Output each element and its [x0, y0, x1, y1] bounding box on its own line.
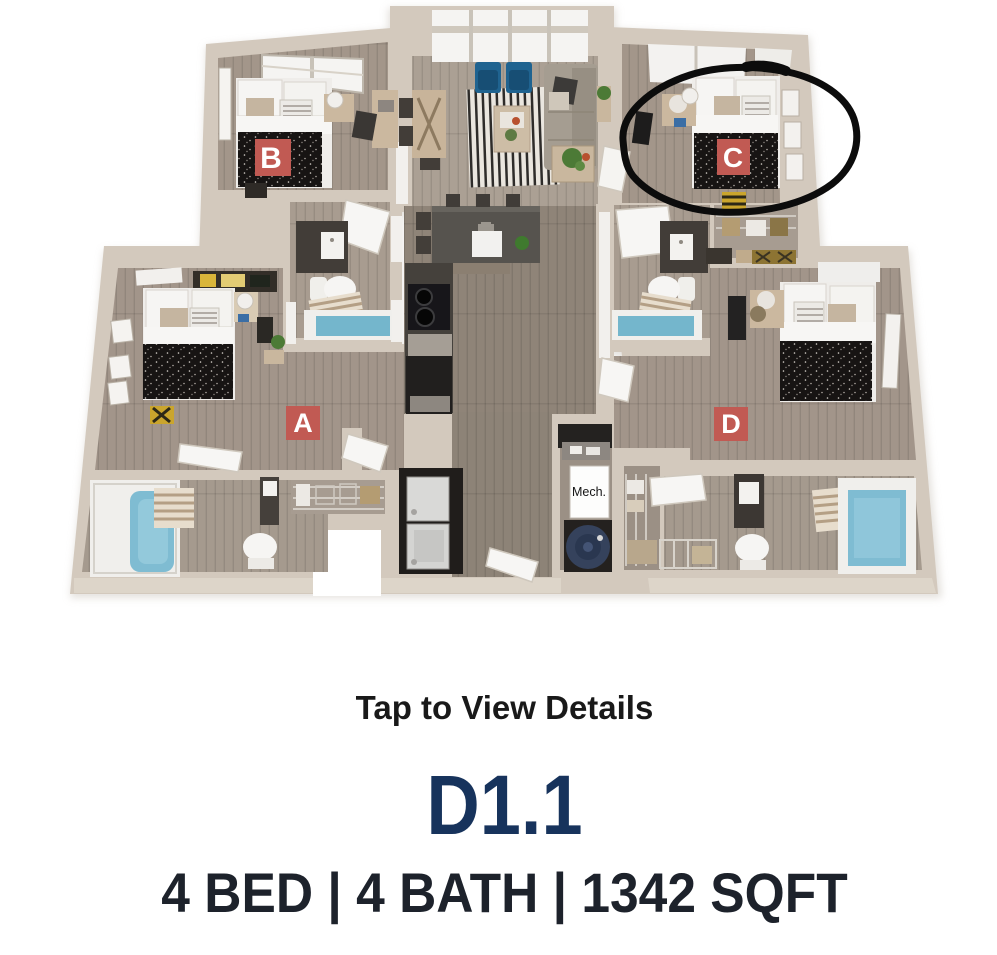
svg-text:D: D [721, 409, 741, 439]
svg-text:Mech.: Mech. [572, 485, 606, 499]
svg-text:C: C [723, 142, 743, 173]
svg-text:A: A [293, 408, 313, 438]
svg-text:B: B [260, 142, 282, 175]
